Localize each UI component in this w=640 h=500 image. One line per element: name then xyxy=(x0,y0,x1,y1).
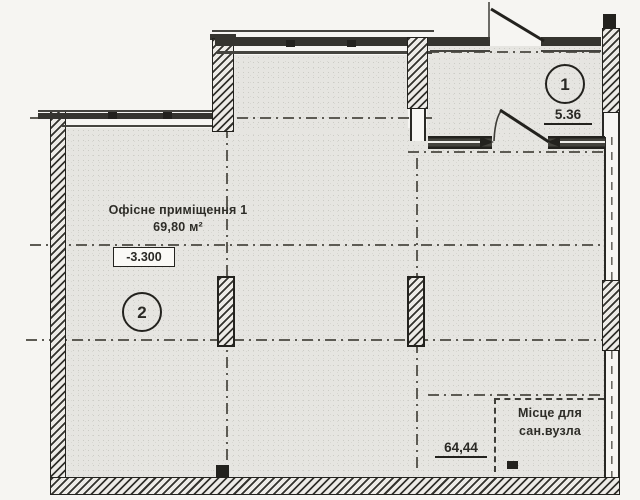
label-sanitary-line1: Місце для xyxy=(498,404,602,422)
label-room-name: Офісне приміщення 1 xyxy=(96,203,260,217)
room-badge-2: 2 xyxy=(122,292,162,332)
room-badge-1: 1 xyxy=(545,64,585,104)
dim-entry-width: 5.36 xyxy=(544,107,592,125)
door-leaf-entry xyxy=(491,9,544,41)
door-arc-interior xyxy=(494,111,501,141)
label-sanitary: Місце для сан.вузла xyxy=(498,404,602,440)
dim-bottom: 64,44 xyxy=(435,440,487,458)
opening-arrow-right xyxy=(547,137,560,147)
floor-plan: Офісне приміщення 1 69,80 м² -3.300 2 1 … xyxy=(0,0,640,500)
door-leaf-interior xyxy=(500,110,549,142)
label-sanitary-line2: сан.вузла xyxy=(498,422,602,440)
opening-arrow-left xyxy=(480,137,494,147)
elevation-mark: -3.300 xyxy=(113,247,175,267)
label-room-area: 69,80 м² xyxy=(96,220,260,234)
